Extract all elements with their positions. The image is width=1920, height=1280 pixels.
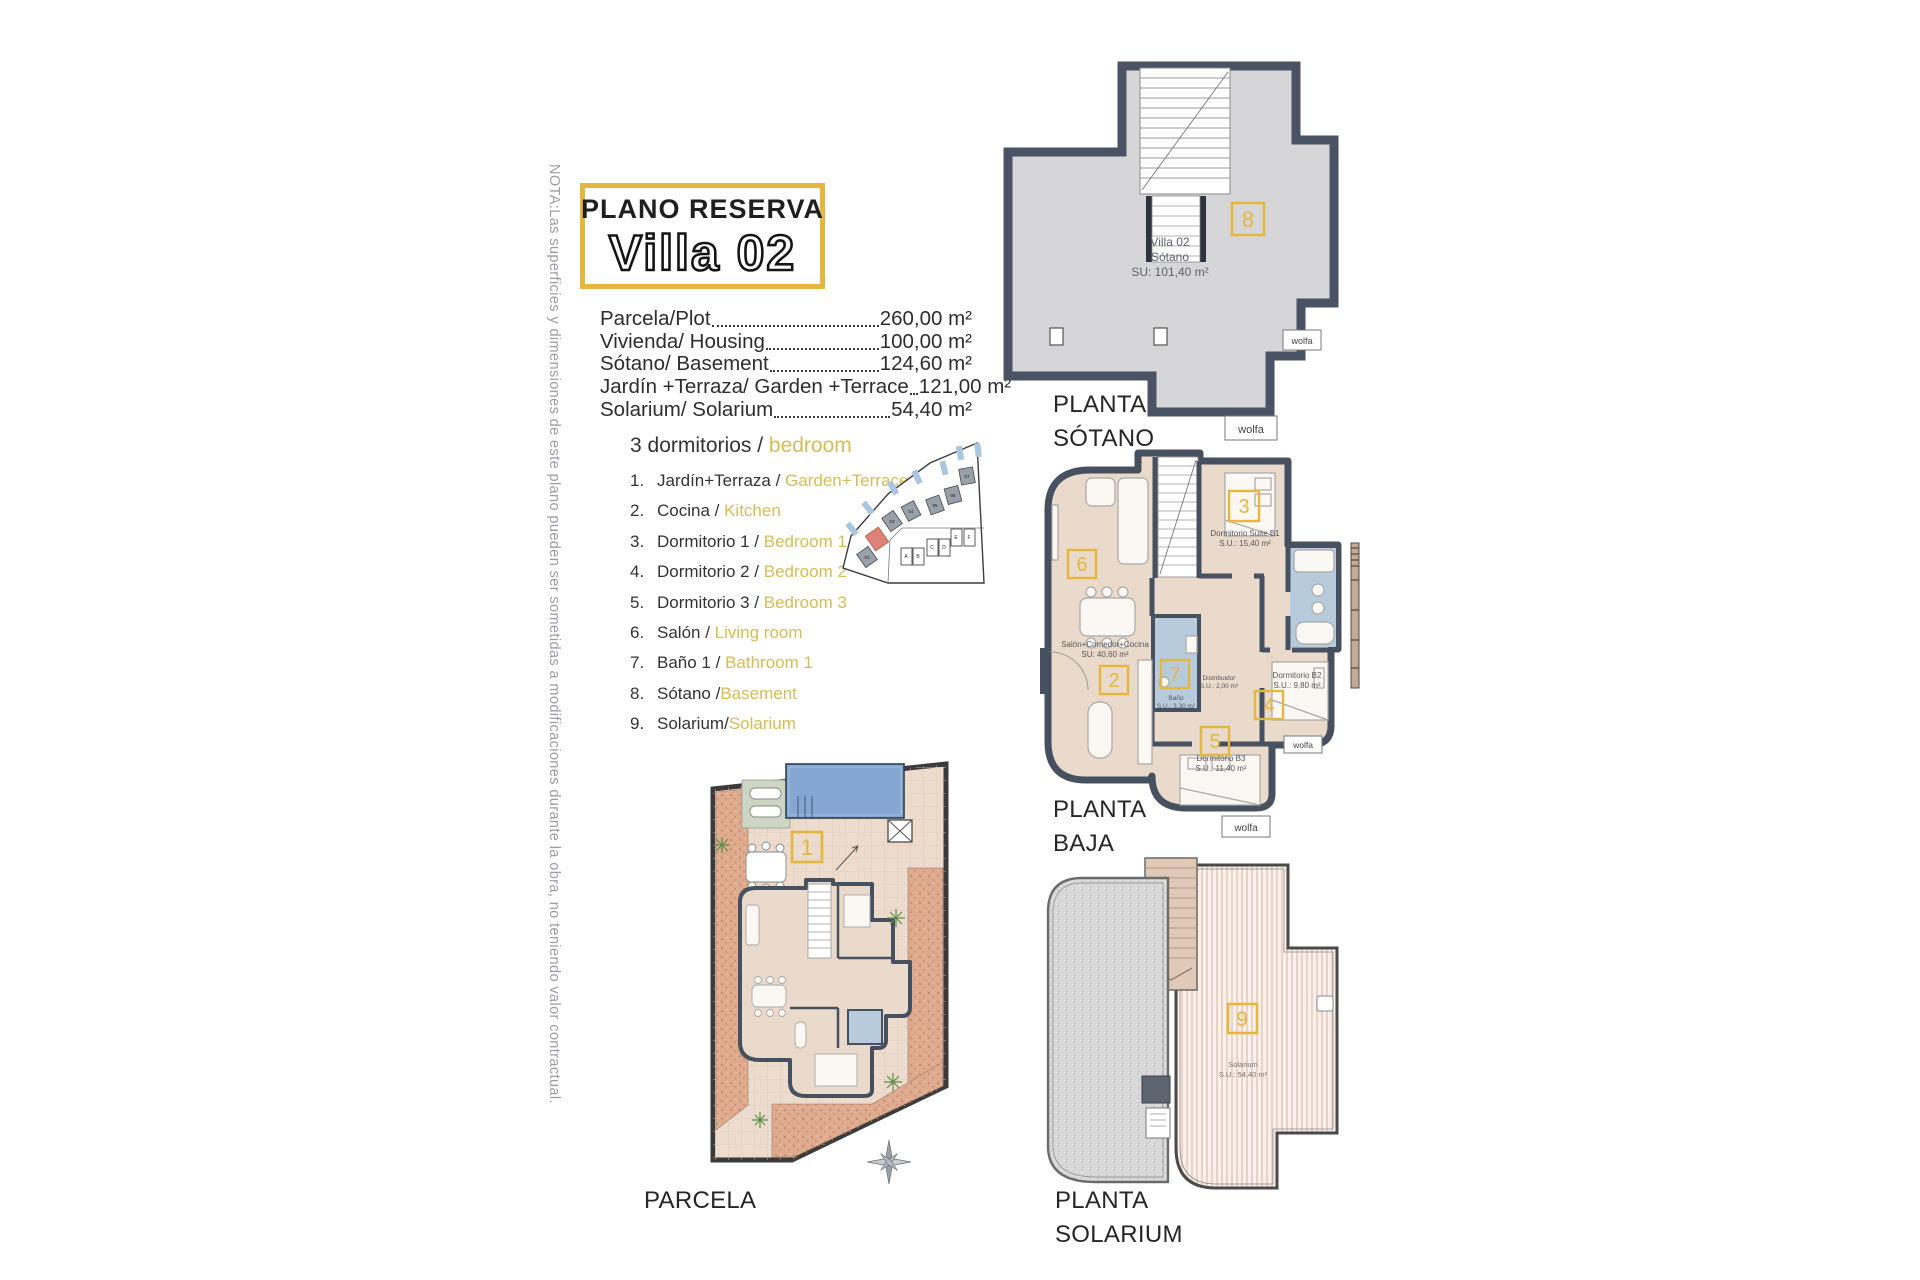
basement-caption-area: SU: 101,40 m² [1131,265,1208,279]
legend-item-es: Solarium/ [657,714,729,744]
small-vent-box [1146,1108,1170,1138]
basement-caption-line2: Sótano [1151,250,1189,264]
legend-item: 7.Baño 1 / Bathroom 1 [630,653,908,683]
rooflight-box [1317,996,1333,1011]
room-area: S.U.: 15,40 m² [1219,539,1271,548]
label-line: PLANTA [1053,796,1146,823]
sun-deck [742,780,790,828]
label-line: BAJA [1053,830,1114,857]
tag-5-number: 5 [1209,731,1220,753]
wolfa-logo-text: wolfa [1233,823,1258,834]
plan-parcela: 1 [698,750,978,1185]
pillar [1154,328,1167,345]
villa-plot-label: 04 [908,509,914,514]
area-row: Solarium/ Solarium54,40 m² [600,399,972,422]
row-house-label: D [942,545,946,551]
tag-1-number: 1 [801,835,813,860]
groundfloor-stairs [1158,457,1198,577]
area-label: Solarium/ Solarium [600,398,773,422]
tag-8-number: 8 [1242,207,1254,232]
area-row: Jardín +Terraza/ Garden +Terrace121,00 m… [600,376,972,399]
legend-item-en: Solarium [729,714,796,744]
legend-item-es: Cocina / [657,501,724,531]
label-line: SOLARIUM [1055,1221,1183,1248]
area-value: 100,00 m² [880,330,972,354]
legend-item-es: Salón / [657,623,715,653]
tag-9-number: 9 [1236,1008,1248,1031]
legend-item-en: Basement [720,684,797,714]
basement-caption-line1: Villa 02 [1150,235,1189,249]
legend-item-number: 1. [630,471,657,501]
legend-item-es: Dormitorio 2 / [657,562,764,592]
solarium-caption-name: Solarium [1228,1060,1258,1069]
area-row: Vivienda/ Housing100,00 m² [600,331,972,354]
plan-kicker: PLANO RESERVA [581,194,824,225]
row-house-label: C [930,545,934,551]
row-house-label: F [967,535,970,541]
legend-item-number: 4. [630,562,657,592]
room-label: Baño [1168,695,1184,702]
legend-item-number: 7. [630,653,657,683]
legend-item-number: 6. [630,623,657,653]
legend-item: 6.Salón / Living room [630,623,908,653]
floorplan-solarium: 9 Solarium S.U.: 54,40 m² [1038,850,1353,1205]
site-map: 01 03 04 05 06 07 A B C D E F [826,436,1004,598]
tag-2-number: 2 [1108,670,1119,692]
villa-plot-label: 03 [889,519,895,524]
legend-item-number: 8. [630,684,657,714]
dotted-leader [774,416,890,418]
room-label: Dormitorio Suite B1 [1210,529,1280,538]
villa-plot-label: 06 [950,493,956,498]
pergola [888,820,912,842]
solarium-caption-area: S.U.: 54,40 m² [1219,1070,1268,1079]
legend-item-en: Kitchen [724,501,781,531]
room-area: SU: 40,60 m² [1081,650,1128,659]
room-area: S.U.: 11,40 m² [1196,764,1247,773]
wolfa-logo-text: wolfa [1237,424,1265,436]
area-value: 54,40 m² [891,398,972,422]
wolfa-logo: wolfa [1225,416,1277,440]
pillar [1050,328,1063,345]
legend-item-en: Bathroom 1 [725,653,813,683]
label-line: PLANTA [1055,1187,1148,1214]
title-box: PLANO RESERVA Villa 02 [580,183,825,289]
legend-item-en: Living room [715,623,803,653]
area-label: Jardín +Terraza/ Garden +Terrace [600,375,909,399]
tag-7-number: 7 [1169,664,1180,686]
villa-plot-label: 05 [932,503,938,508]
room-label: Dormitorio B2 [1273,671,1322,680]
label-planta-solarium: PLANTASOLARIUM [1055,1184,1183,1252]
dotted-leader [910,393,918,395]
house-bathroom [848,1010,882,1044]
swimming-pool [786,764,904,818]
legend-item: 8.Sótano /Basement [630,684,908,714]
legend-item-number: 9. [630,714,657,744]
legend-item-es: Baño 1 / [657,653,725,683]
wolfa-logo-text: wolfa [1290,336,1312,346]
area-label: Sótano/ Basement [600,352,769,376]
tag-6-number: 6 [1076,554,1087,576]
villa-plot-label: 07 [964,474,970,479]
wolfa-logo-text: wolfa [1292,740,1313,750]
label-planta-sotano: PLANTASÓTANO [1053,388,1154,456]
label-planta-baja: PLANTABAJA [1053,793,1146,861]
label-parcela: PARCELA [644,1184,756,1218]
chimney-connector [1142,1076,1170,1103]
wolfa-logo: wolfa [1222,816,1270,837]
area-label: Parcela/Plot [600,307,711,331]
garden-strip [908,868,943,1086]
tag-3-number: 3 [1238,496,1249,518]
dotted-leader [770,370,879,372]
label-line: SÓTANO [1053,425,1154,452]
surface-areas-list: Parcela/Plot260,00 m² Vivienda/ Housing1… [600,308,972,422]
area-row: Sótano/ Basement124,60 m² [600,354,972,377]
area-row: Parcela/Plot260,00 m² [600,308,972,331]
label-line: PLANTA [1053,391,1146,418]
area-value: 124,60 m² [880,352,972,376]
label-line: PARCELA [644,1187,756,1214]
room-label: Distribuidor [1203,675,1237,682]
wolfa-logo: wolfa [1283,330,1321,350]
tag-4-number: 4 [1263,695,1274,717]
vertical-disclaimer-note: NOTA:Las superficies y dimensiones de es… [546,164,562,1104]
legend-item-es: Sótano / [657,684,720,714]
dotted-leader [766,348,879,350]
legend-item-number: 3. [630,532,657,562]
room-area: S.U.: 2,00 m² [1200,683,1239,690]
villa-plot-label: 01 [864,555,870,560]
area-value: 260,00 m² [880,307,972,331]
room-label: Salón+Comedor+Cocina [1061,640,1149,649]
compass-rose-icon [867,1140,911,1184]
room-area: S.U.: 9,80 m² [1273,681,1320,690]
legend-item: 9.Solarium/Solarium [630,714,908,744]
legend-item-number: 5. [630,593,657,623]
wolfa-logo: wolfa [1284,736,1322,753]
scale-bar [1351,543,1359,688]
entrance-door [1040,648,1050,694]
legend-item-es: Dormitorio 3 / [657,593,764,623]
area-label: Vivienda/ Housing [600,330,765,354]
room-area: S.U.: 3,30 m² [1157,703,1196,710]
dotted-leader [712,325,879,327]
legend-item-es: Jardín+Terraza / [657,471,785,501]
outdoor-table [746,842,786,892]
legend-item-number: 2. [630,501,657,531]
villa-name: Villa 02 [609,228,796,278]
plan-reserva-sheet: NOTA:Las superficies y dimensiones de es… [0,0,1920,1280]
legend-item-es: Dormitorio 1 / [657,532,764,562]
legend-heading-es: 3 dormitorios / [630,434,769,457]
floorplan-sotano: Villa 02 Sótano SU: 101,40 m² 8 wolfa wo… [985,35,1350,445]
